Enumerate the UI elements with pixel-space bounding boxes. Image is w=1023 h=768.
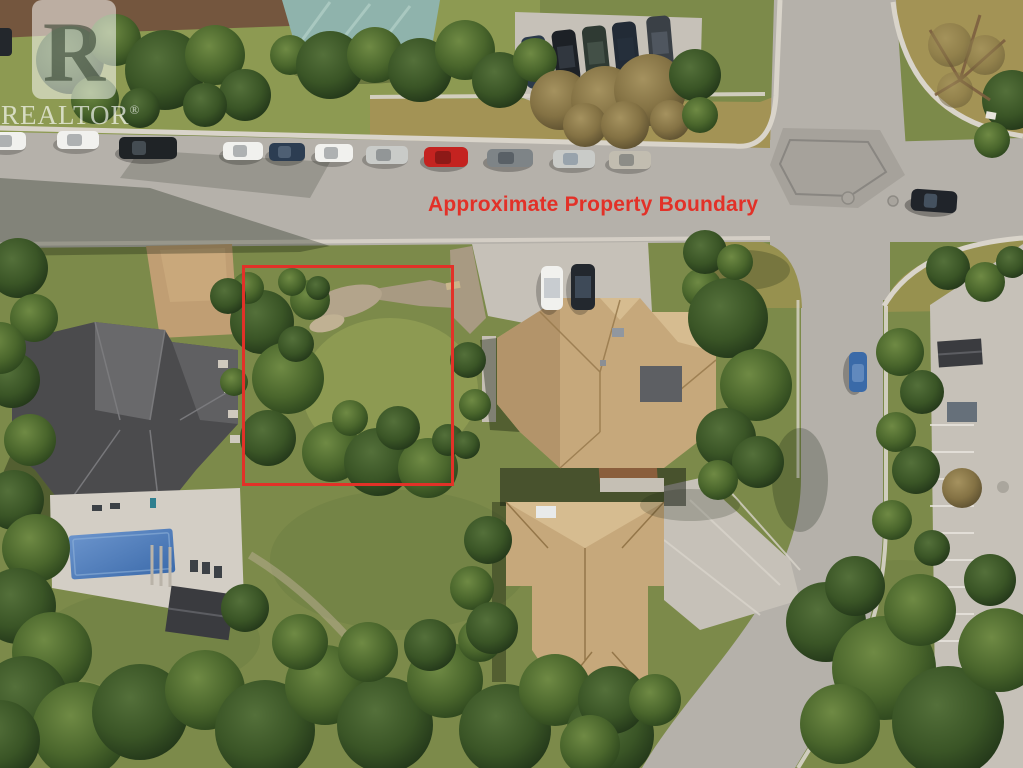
boundary-label: Approximate Property Boundary — [428, 193, 758, 217]
realtor-logo-letter: R — [43, 9, 105, 95]
parked-car — [605, 151, 651, 174]
roof-patio — [640, 366, 682, 402]
parked-car — [420, 147, 468, 172]
road-north — [770, 0, 906, 150]
manhole — [888, 196, 898, 206]
aerial-scene — [0, 0, 1023, 768]
registered-trademark-symbol: ® — [130, 102, 141, 117]
parked-car — [549, 150, 595, 173]
skylight — [612, 328, 624, 337]
parked-car — [362, 146, 408, 169]
parked-car — [0, 28, 12, 56]
parked-car — [265, 143, 305, 166]
rooftop-unit — [536, 506, 556, 518]
red-boundary-rectangle — [242, 265, 454, 486]
parked-car — [53, 131, 99, 154]
manhole — [997, 481, 1009, 493]
realtor-watermark-text: REALTOR® — [1, 100, 140, 131]
parked-car — [115, 137, 177, 164]
parked-car — [219, 142, 263, 165]
manhole — [842, 192, 854, 204]
parked-car — [483, 149, 533, 172]
swimming-pool — [69, 528, 176, 579]
shed-roof — [937, 338, 983, 367]
parked-car — [311, 144, 353, 167]
realtor-logo-watermark: R — [32, 0, 116, 99]
aerial-photo: R REALTOR® Approximate Property Boundary — [0, 0, 1023, 768]
shed-roof — [947, 402, 977, 422]
